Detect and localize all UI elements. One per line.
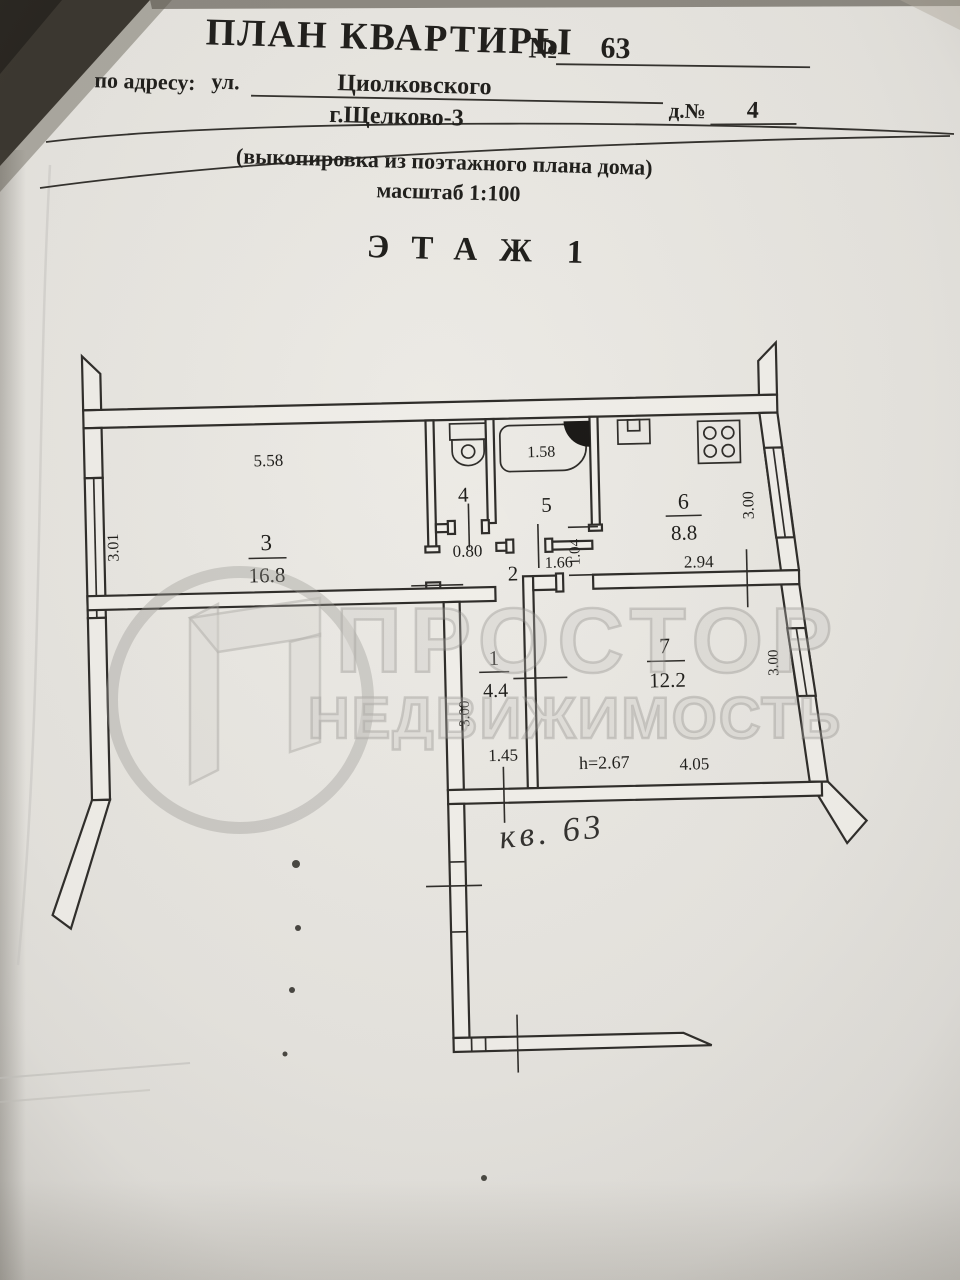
floor-number: 1	[566, 235, 583, 271]
dim-bath-length: 1.58	[527, 444, 555, 462]
room-corridor-number: 2	[507, 561, 518, 585]
room-wc-number: 4	[458, 483, 470, 507]
door-jamb	[545, 539, 552, 552]
dim-ceiling-height: h=2.67	[579, 752, 630, 773]
street-label: ул.	[211, 69, 240, 95]
wall-left-upper	[84, 428, 103, 478]
dim-room3-depth: 3.01	[105, 533, 123, 561]
dim-kitchen-doorway: 1.04	[567, 538, 584, 565]
house-label: д.№	[668, 98, 706, 123]
wall-kitchen-left	[589, 417, 599, 527]
floor-label: ЭТАЖ	[366, 229, 554, 270]
apartment-number: 63	[600, 31, 631, 65]
watermark-brand-line2: НЕДВИЖИМОСТЬ	[308, 686, 843, 751]
scale-label: масштаб 1:100	[376, 177, 521, 206]
door-jamb	[482, 520, 489, 533]
scanned-floor-plan-photo: ПЛАН КВАРТИРЫ № 63 по адресу: ул. Циолко…	[0, 0, 960, 1280]
house-number: 4	[746, 98, 759, 124]
dim-room7-width: 4.05	[679, 754, 709, 774]
watermark-brand-line1: ПРОСТОР	[336, 590, 841, 692]
dim-room3-width: 5.58	[253, 451, 283, 471]
address-label: по адресу:	[94, 67, 196, 95]
room-kitchen-number: 6	[678, 489, 690, 514]
wall-room4-room5	[485, 419, 495, 523]
dim-kitchen-width: 2.94	[684, 552, 715, 572]
room-living-number: 3	[260, 530, 272, 555]
city-name: г.Щелково-3	[329, 102, 464, 132]
room-kitchen-area: 8.8	[671, 520, 698, 545]
room-bathroom-number: 5	[541, 493, 552, 517]
dim-kitchen-depth: 3.00	[740, 491, 758, 519]
page-title-number-sign: №	[528, 31, 559, 65]
door-jamb	[506, 540, 513, 553]
door-jamb	[589, 525, 602, 531]
street-name: Циолковского	[337, 70, 492, 100]
dim-wc-door: 0.80	[452, 541, 482, 561]
door-jamb	[556, 573, 563, 591]
wall-room3-room4	[425, 420, 436, 548]
door-jamb	[448, 521, 455, 534]
door-jamb	[425, 546, 439, 552]
